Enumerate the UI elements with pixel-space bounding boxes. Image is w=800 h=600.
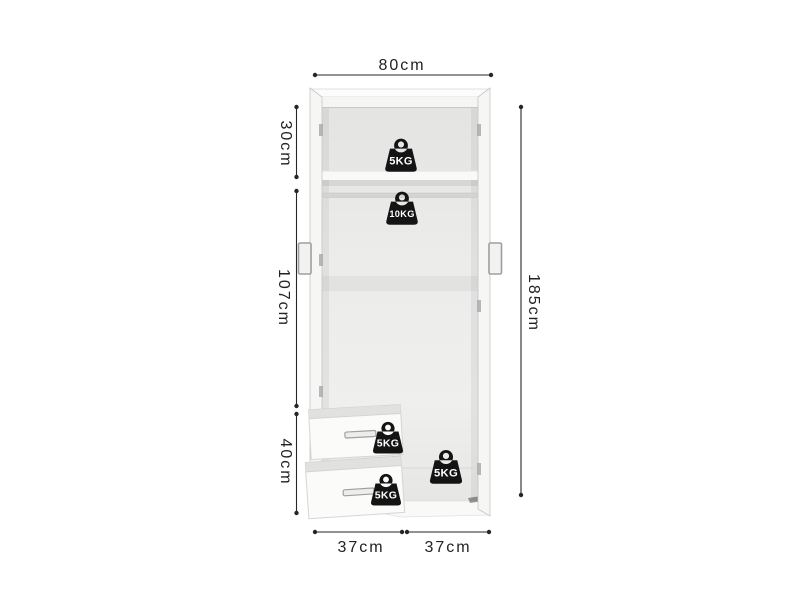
hinge-icon (319, 124, 323, 136)
bottom-right-width-label: 37cm (424, 540, 471, 556)
top-shelf-shadow (322, 180, 478, 186)
top-shelf (322, 171, 478, 180)
left-door-handle (299, 243, 312, 274)
wardrobe-diagram: 5KG 10KG 5KG 5KG 5KG (0, 0, 800, 600)
hinge-icon (319, 254, 323, 266)
weight-label: 5KG (377, 438, 400, 450)
hinge-icon (319, 386, 323, 397)
bottom-right-width-dimension-line (405, 530, 491, 534)
right-door-handle (489, 243, 502, 274)
bottom-left-width-dimension-line (313, 530, 404, 534)
top-panel (322, 97, 478, 107)
hinge-icon (477, 124, 481, 136)
lower-section-height-label: 40cm (277, 438, 293, 485)
upper-section-dimension-line (294, 105, 298, 179)
bottom-drawer-handle (343, 488, 374, 496)
interior-right-shade (471, 97, 478, 505)
total-height-label: 185cm (525, 274, 541, 332)
total-height-dimension-line (519, 105, 523, 497)
product-diagram-canvas: 5KG 10KG 5KG 5KG 5KG (0, 0, 800, 600)
bottom-left-width-label: 37cm (337, 540, 384, 556)
top-panel-surface (310, 89, 490, 97)
hinge-icon (477, 463, 481, 475)
top-width-label: 80cm (378, 58, 425, 74)
hinge-icon (477, 300, 481, 312)
lower-section-dimension-line (294, 412, 298, 515)
upper-section-height-label: 30cm (277, 120, 293, 167)
middle-section-dimension-line (294, 189, 298, 408)
weight-label: 5KG (389, 156, 413, 168)
weight-label: 10KG (389, 209, 414, 219)
top-drawer-handle (345, 430, 376, 438)
middle-section-height-label: 107cm (275, 269, 291, 327)
back-panel-seam (322, 276, 478, 291)
weight-label: 5KG (434, 467, 458, 479)
weight-label: 5KG (375, 490, 398, 502)
